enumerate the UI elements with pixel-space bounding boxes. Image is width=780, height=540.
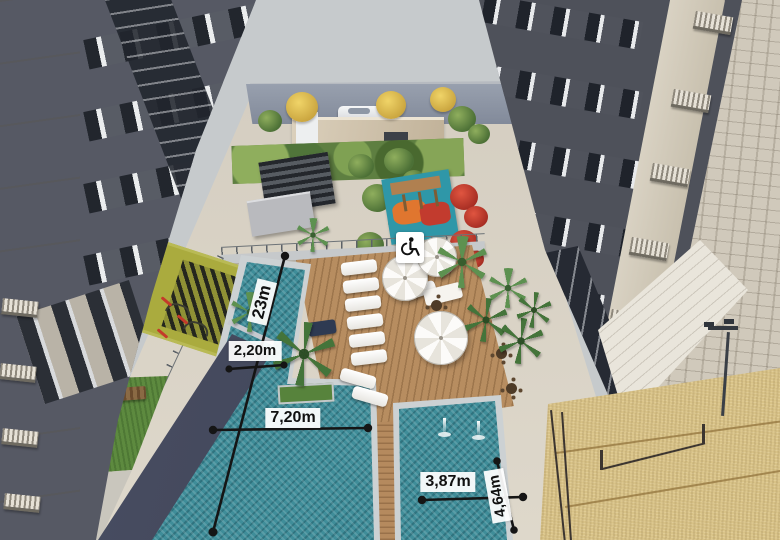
palm-tree — [272, 322, 336, 386]
yellow-tree — [286, 92, 318, 122]
car-window — [348, 108, 370, 114]
umbrella — [414, 311, 468, 365]
scene: 23m 2,20m 7,20m 3,87m 4,64m — [0, 0, 780, 540]
measurement-label-lane-width: 2,20m — [229, 341, 282, 361]
wheelchair-accessibility-icon — [396, 232, 424, 263]
net-post — [702, 424, 705, 444]
net-post — [600, 450, 603, 470]
bush — [468, 124, 490, 144]
fountain-splash — [472, 435, 485, 440]
bush — [348, 154, 374, 178]
floodlight — [724, 319, 734, 324]
fountain-splash — [438, 432, 451, 437]
palm-tree — [296, 218, 330, 252]
yellow-tree — [376, 91, 406, 119]
table-with-chairs — [506, 383, 517, 394]
palm-tree — [436, 236, 488, 288]
table-with-chairs — [431, 300, 442, 311]
wheelchair-glyph — [399, 235, 421, 260]
flower-bush — [464, 206, 488, 228]
left-tower-beige-facade — [0, 0, 80, 540]
floodlight — [704, 322, 714, 327]
measurement-label-main-pool-width: 7,20m — [265, 408, 320, 428]
measurement-label-small-pool-width: 3,87m — [420, 472, 475, 492]
palm-tree — [516, 292, 552, 328]
bush — [258, 110, 282, 132]
window-row — [481, 0, 643, 50]
